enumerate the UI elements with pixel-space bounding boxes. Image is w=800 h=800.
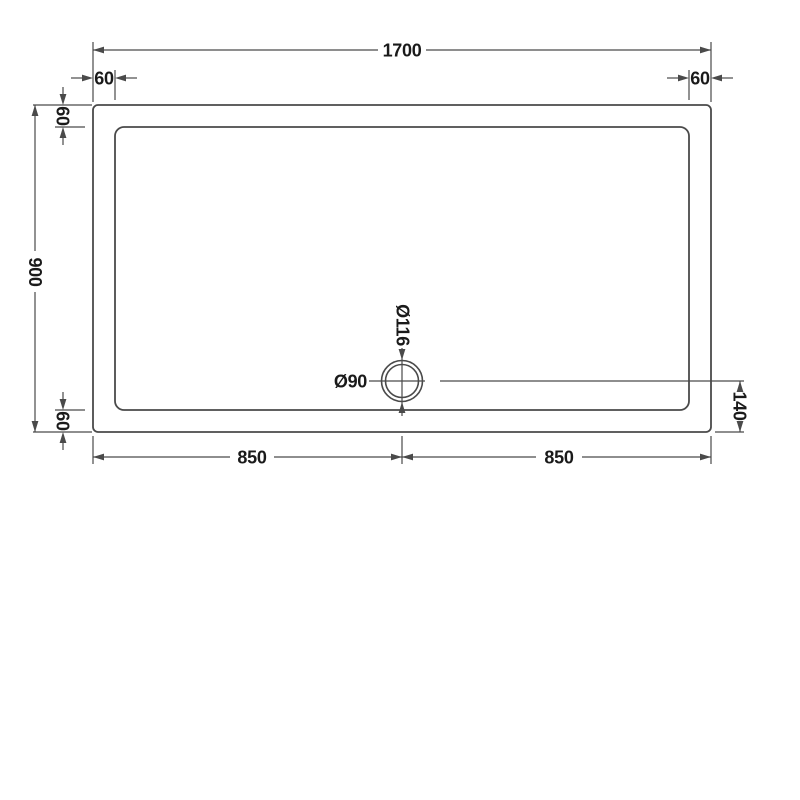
- inset-left-top-label: 60: [53, 106, 73, 126]
- arrowhead-left: [115, 75, 126, 82]
- waste-offset-label: 140: [730, 391, 750, 420]
- waste-outer-diameter-label: Ø116: [393, 304, 413, 346]
- inset-top-left-label: 60: [94, 69, 114, 89]
- arrowhead-right: [700, 454, 711, 461]
- half-width-right-label: 850: [544, 448, 573, 468]
- dimension-overall-width: 1700: [93, 41, 711, 103]
- arrowhead-right: [82, 75, 93, 82]
- arrowhead-left: [402, 454, 413, 461]
- arrowhead-right: [700, 47, 711, 54]
- dimension-overall-depth: 900: [25, 105, 92, 432]
- inset-top-right-label: 60: [690, 69, 710, 89]
- arrowhead-up: [737, 381, 744, 392]
- arrowhead-left: [93, 47, 104, 54]
- arrowhead-right: [678, 75, 689, 82]
- arrowhead-right: [391, 454, 402, 461]
- overall-width-label: 1700: [383, 41, 422, 61]
- dimension-inset-top-left: 60: [71, 69, 137, 101]
- dimension-waste-inner-diameter: Ø90: [334, 372, 367, 392]
- drawing-canvas: 1700 60 60 900 60: [0, 0, 800, 800]
- dimension-inset-left-top: 60: [53, 87, 86, 145]
- arrowhead-down: [32, 421, 39, 432]
- arrowhead-left: [711, 75, 722, 82]
- arrowhead-up: [32, 105, 39, 116]
- shower-tray-technical-drawing: 1700 60 60 900 60: [0, 0, 800, 800]
- dimension-half-width-right: 850: [402, 436, 711, 468]
- arrowhead-down: [737, 421, 744, 432]
- arrowhead-up: [60, 127, 67, 138]
- half-width-left-label: 850: [237, 448, 266, 468]
- arrowhead-left: [93, 454, 104, 461]
- inset-left-bottom-label: 60: [53, 411, 73, 431]
- waste-inner-diameter-label: Ø90: [334, 372, 367, 392]
- dimension-inset-left-bottom: 60: [53, 392, 86, 450]
- dimension-inset-top-right: 60: [667, 69, 733, 101]
- arrowhead-up: [60, 432, 67, 443]
- arrowhead-down: [60, 399, 67, 410]
- overall-depth-label: 900: [25, 257, 45, 286]
- dimension-half-width-left: 850: [93, 436, 402, 468]
- arrowhead-down: [60, 94, 67, 105]
